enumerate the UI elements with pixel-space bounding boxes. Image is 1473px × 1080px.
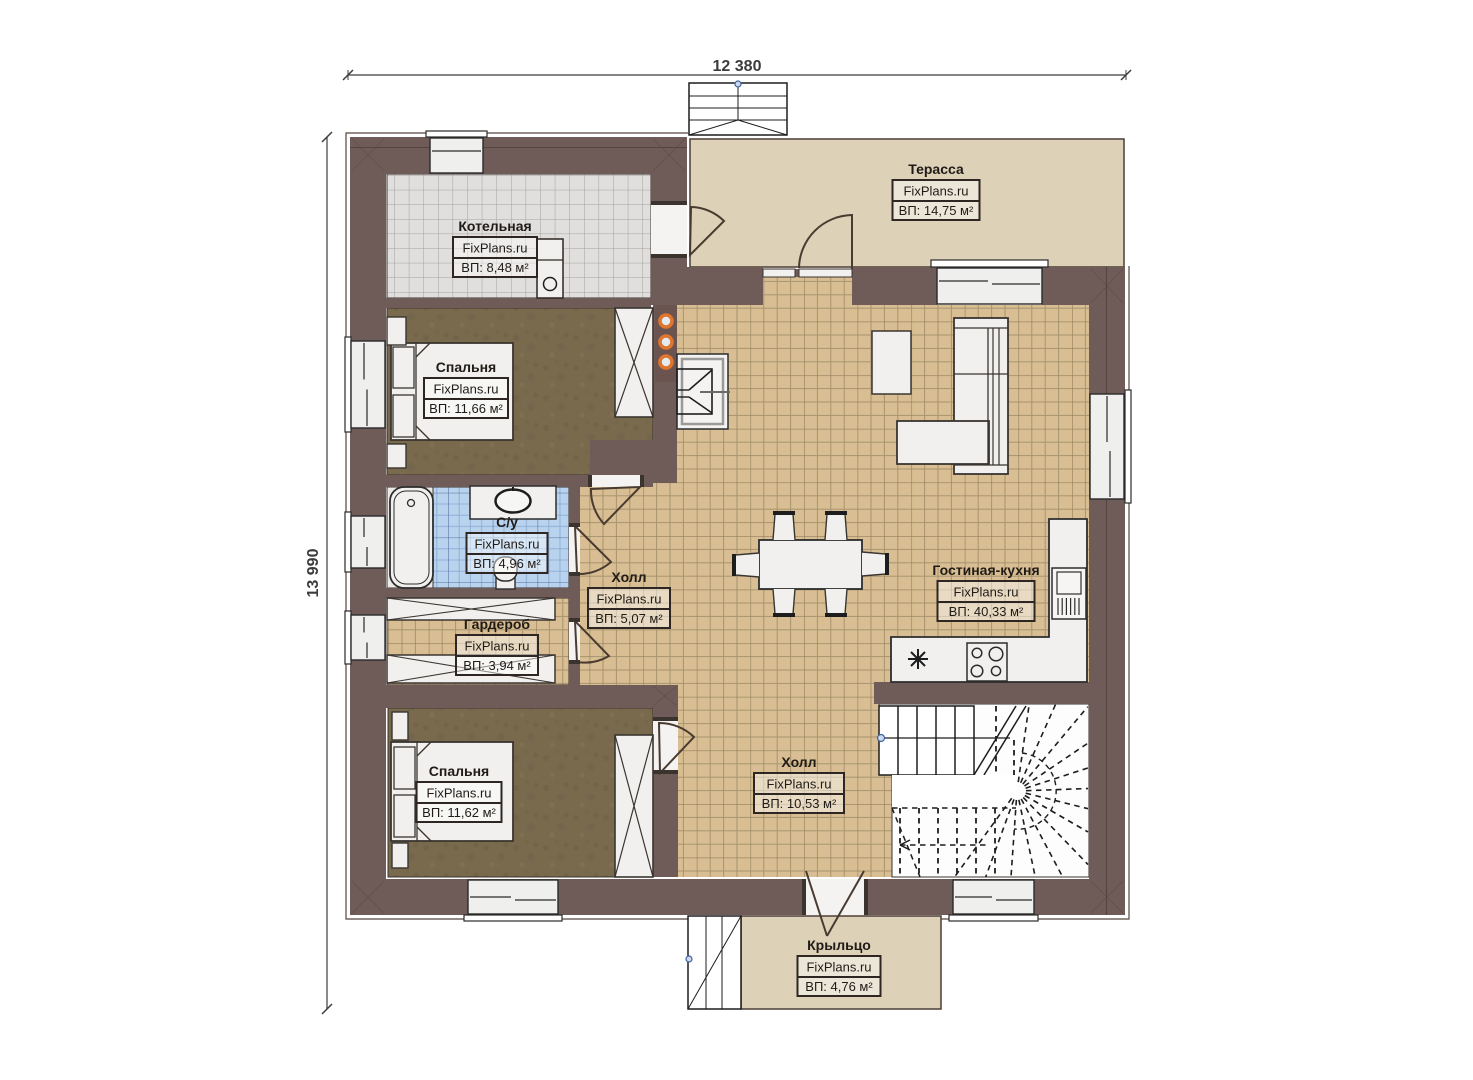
svg-text:12 380: 12 380	[713, 58, 762, 75]
svg-text:FixPlans.ru: FixPlans.ru	[433, 382, 498, 397]
svg-text:Котельная: Котельная	[458, 218, 531, 234]
svg-text:Гостиная-кухня: Гостиная-кухня	[932, 562, 1039, 578]
svg-text:Терасса: Терасса	[908, 161, 964, 177]
svg-text:ВП: 10,53 м²: ВП: 10,53 м²	[762, 796, 837, 811]
svg-text:Холл: Холл	[781, 754, 816, 770]
svg-text:ВП: 11,62 м²: ВП: 11,62 м²	[422, 805, 496, 820]
svg-text:FixPlans.ru: FixPlans.ru	[426, 786, 491, 801]
svg-text:ВП: 14,75 м²: ВП: 14,75 м²	[899, 203, 974, 218]
svg-text:Гардероб: Гардероб	[464, 616, 531, 632]
svg-text:13 990: 13 990	[305, 548, 322, 597]
svg-text:С/у: С/у	[496, 514, 518, 530]
svg-text:FixPlans.ru: FixPlans.ru	[903, 184, 968, 199]
svg-text:FixPlans.ru: FixPlans.ru	[596, 592, 661, 607]
svg-text:ВП: 4,96 м²: ВП: 4,96 м²	[473, 556, 541, 571]
svg-text:FixPlans.ru: FixPlans.ru	[474, 537, 539, 552]
svg-text:ВП: 5,07 м²: ВП: 5,07 м²	[595, 611, 663, 626]
svg-text:FixPlans.ru: FixPlans.ru	[953, 585, 1018, 600]
svg-text:Спальня: Спальня	[429, 763, 489, 779]
svg-text:FixPlans.ru: FixPlans.ru	[806, 960, 871, 975]
svg-text:FixPlans.ru: FixPlans.ru	[462, 241, 527, 256]
svg-text:ВП: 11,66 м²: ВП: 11,66 м²	[429, 401, 503, 416]
svg-text:Крыльцо: Крыльцо	[807, 937, 871, 953]
svg-text:ВП: 4,76 м²: ВП: 4,76 м²	[805, 979, 873, 994]
svg-text:ВП: 40,33 м²: ВП: 40,33 м²	[949, 604, 1024, 619]
svg-text:Холл: Холл	[611, 569, 646, 585]
svg-text:ВП: 3,94 м²: ВП: 3,94 м²	[463, 658, 531, 673]
svg-text:FixPlans.ru: FixPlans.ru	[766, 777, 831, 792]
svg-text:ВП: 8,48 м²: ВП: 8,48 м²	[461, 260, 529, 275]
svg-text:Спальня: Спальня	[436, 359, 496, 375]
svg-text:FixPlans.ru: FixPlans.ru	[464, 639, 529, 654]
